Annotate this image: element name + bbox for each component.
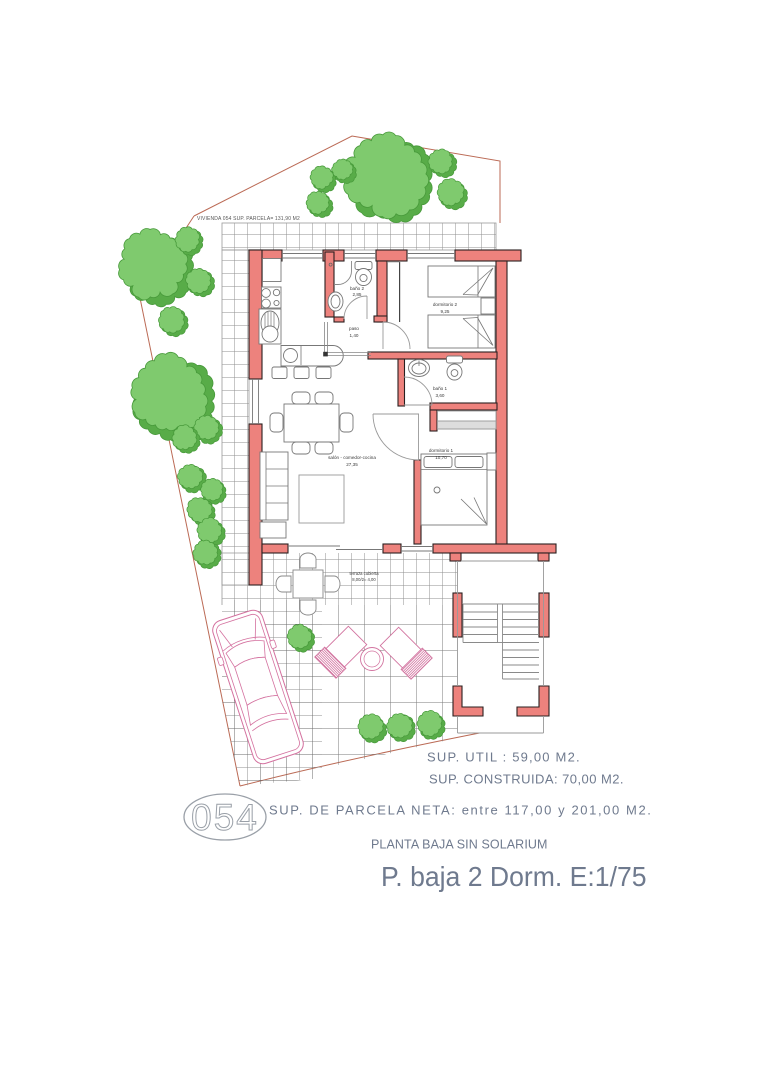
svg-text:P. baja 2 Dorm. E:1/75: P. baja 2 Dorm. E:1/75 bbox=[381, 860, 647, 892]
svg-text:10,70: 10,70 bbox=[435, 455, 447, 460]
svg-text:3,60: 3,60 bbox=[436, 393, 445, 398]
svg-text:SUP. CONSTRUIDA: 70,00 M2.: SUP. CONSTRUIDA: 70,00 M2. bbox=[429, 772, 624, 787]
svg-text:SUP. UTIL : 59,00 M2.: SUP. UTIL : 59,00 M2. bbox=[427, 750, 581, 765]
svg-text:8,00/2= 4,00: 8,00/2= 4,00 bbox=[352, 577, 376, 582]
svg-text:terraza cubierta: terraza cubierta bbox=[349, 571, 379, 576]
svg-text:1,40: 1,40 bbox=[350, 333, 359, 338]
svg-text:baño 2: baño 2 bbox=[350, 286, 364, 291]
svg-text:baño 1: baño 1 bbox=[433, 386, 447, 391]
svg-text:SUP. DE PARCELA NETA: entre 11: SUP. DE PARCELA NETA: entre 117,00 y 201… bbox=[269, 803, 653, 818]
svg-text:dormitorio 2: dormitorio 2 bbox=[433, 302, 458, 307]
svg-text:paso: paso bbox=[349, 326, 359, 331]
svg-text:27,35: 27,35 bbox=[346, 462, 358, 467]
svg-text:054: 054 bbox=[191, 797, 259, 838]
svg-text:dormitorio 1: dormitorio 1 bbox=[429, 448, 454, 453]
svg-text:2,85: 2,85 bbox=[353, 292, 362, 297]
svg-text:9,25: 9,25 bbox=[441, 309, 450, 314]
svg-text:VIVIENDA 054 SUP. PARCELA= 131: VIVIENDA 054 SUP. PARCELA= 131,90 M2 bbox=[197, 216, 300, 222]
svg-text:salón - comedor-cocina: salón - comedor-cocina bbox=[328, 455, 376, 460]
svg-text:PLANTA BAJA SIN SOLARIUM: PLANTA BAJA SIN SOLARIUM bbox=[371, 838, 548, 852]
